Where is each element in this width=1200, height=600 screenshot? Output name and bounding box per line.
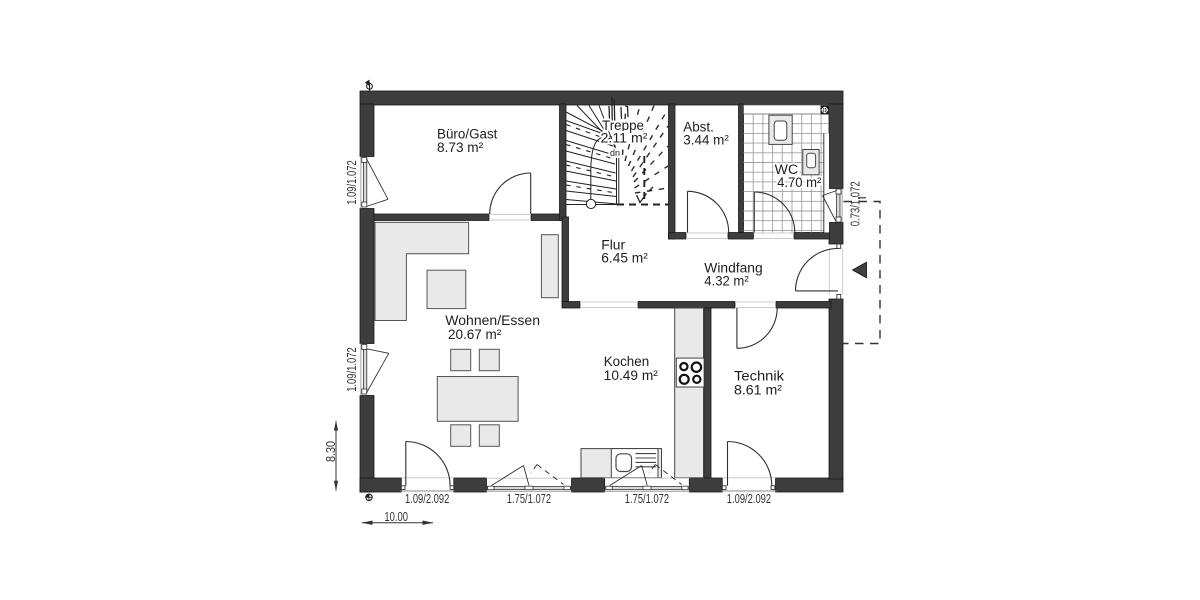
svg-text:10.00: 10.00	[384, 510, 408, 524]
svg-text:8.73 m²: 8.73 m²	[437, 140, 484, 155]
svg-text:Kochen: Kochen	[604, 354, 650, 369]
svg-text:2.11 m²: 2.11 m²	[601, 130, 649, 145]
svg-text:20.67 m²: 20.67 m²	[448, 327, 502, 342]
svg-text:dn: dn	[610, 148, 620, 158]
svg-text:8.30: 8.30	[324, 441, 338, 462]
svg-text:Wohnen/Essen: Wohnen/Essen	[445, 313, 540, 328]
svg-text:4.32 m²: 4.32 m²	[704, 273, 749, 288]
svg-text:8.61 m²: 8.61 m²	[734, 383, 783, 398]
svg-text:6.45 m²: 6.45 m²	[601, 251, 648, 266]
svg-text:1.09/1.072: 1.09/1.072	[345, 347, 359, 392]
svg-text:3.44 m²: 3.44 m²	[683, 133, 729, 148]
svg-text:10.49 m²: 10.49 m²	[604, 368, 659, 383]
svg-text:Technik: Technik	[734, 369, 784, 384]
svg-text:0.73/1.072: 0.73/1.072	[849, 181, 863, 226]
svg-text:1.75/1.072: 1.75/1.072	[625, 492, 669, 506]
svg-text:1.09/2.092: 1.09/2.092	[405, 492, 449, 506]
svg-text:4.70 m²: 4.70 m²	[777, 175, 822, 190]
svg-text:1.09/1.072: 1.09/1.072	[345, 160, 359, 205]
svg-text:1.09/2.092: 1.09/2.092	[727, 492, 771, 506]
svg-text:1.75/1.072: 1.75/1.072	[507, 492, 551, 506]
